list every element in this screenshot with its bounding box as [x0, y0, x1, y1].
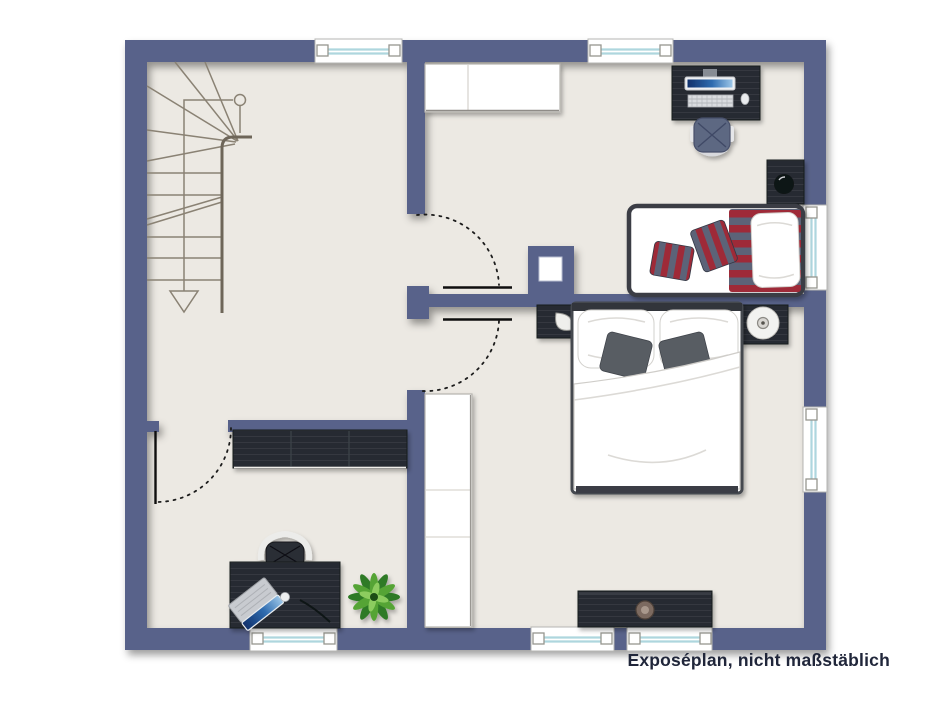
nightstand-lamp-corner — [767, 160, 804, 204]
interior-wall-vertical-upper — [407, 62, 425, 214]
desk-computer — [672, 66, 760, 120]
keyboard — [688, 95, 733, 107]
double-bed — [572, 303, 742, 493]
computer-mouse — [281, 593, 290, 602]
window-right-upper — [803, 205, 827, 290]
window-top-left — [315, 39, 402, 63]
nightstand-right-of-bed — [740, 305, 788, 344]
window-right-lower — [803, 407, 827, 492]
chimney-flue — [539, 257, 562, 281]
sideboard-left-room — [233, 430, 407, 468]
exterior-wall-bottom — [125, 628, 826, 650]
floor-plan-drawing — [0, 0, 950, 712]
monitor-stand — [703, 69, 717, 77]
bed-pillow — [751, 212, 801, 288]
striped-cushion-left — [649, 241, 694, 281]
computer-mouse — [741, 94, 749, 105]
interior-wall-stub — [147, 421, 159, 432]
exterior-wall-top — [125, 40, 826, 62]
monitor-screen — [688, 80, 733, 88]
window-bottom-middle — [531, 627, 614, 651]
sideboard — [233, 430, 407, 468]
interior-wall-vertical-lower — [407, 390, 425, 630]
tall-wardrobe — [425, 394, 472, 627]
office-chair-top — [690, 118, 734, 154]
desk-laptop — [228, 562, 340, 631]
window-bottom-left — [250, 627, 337, 651]
wardrobe — [425, 64, 560, 112]
wall-junction-block — [407, 286, 429, 319]
window-bottom-right — [627, 627, 712, 651]
single-bed — [629, 206, 803, 295]
lowboard-bedroom — [578, 591, 712, 627]
window-top-right — [588, 39, 673, 63]
caption: Exposéplan, nicht maßstäblich — [627, 650, 890, 671]
exterior-wall-right — [804, 40, 826, 650]
exterior-wall-left — [125, 40, 147, 650]
footboard — [576, 486, 738, 493]
floor-plan-page: Exposéplan, nicht maßstäblich — [0, 0, 950, 712]
